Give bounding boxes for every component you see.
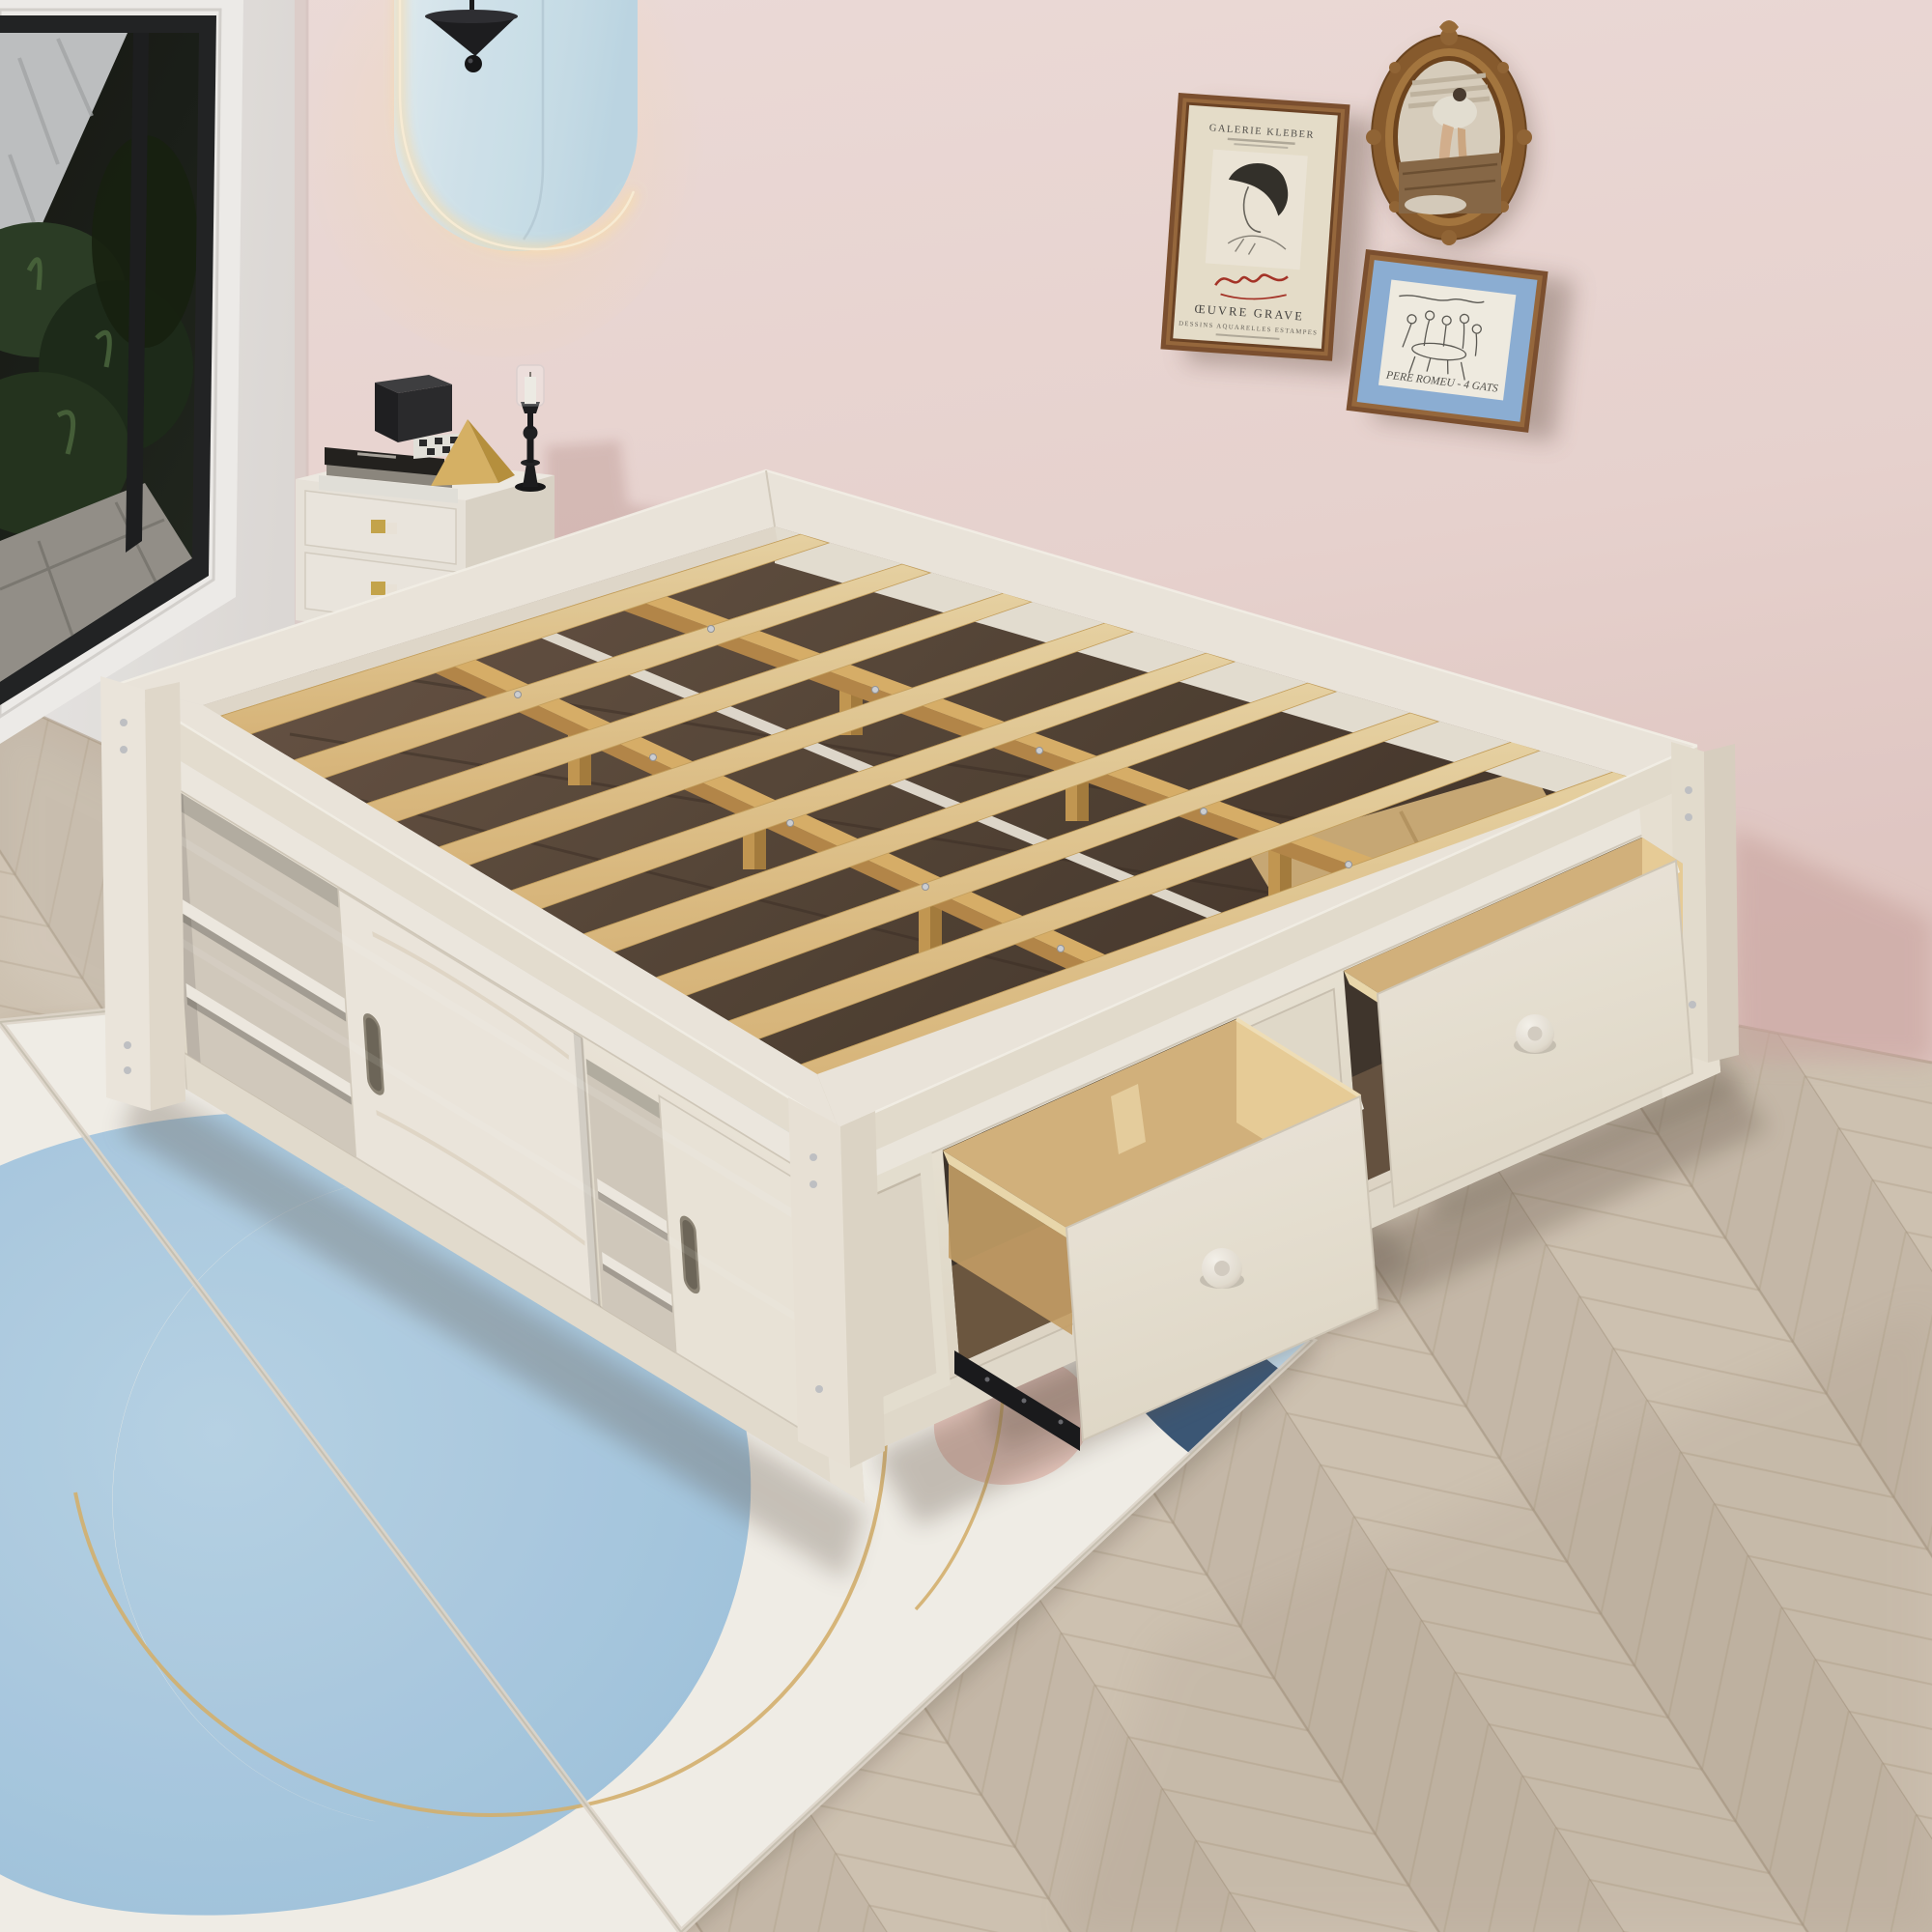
vignette bbox=[0, 0, 1932, 1932]
bedroom-scene: GALERIE KLEBER ŒUVRE GRAVE DESSINS AQUAR… bbox=[0, 0, 1932, 1932]
